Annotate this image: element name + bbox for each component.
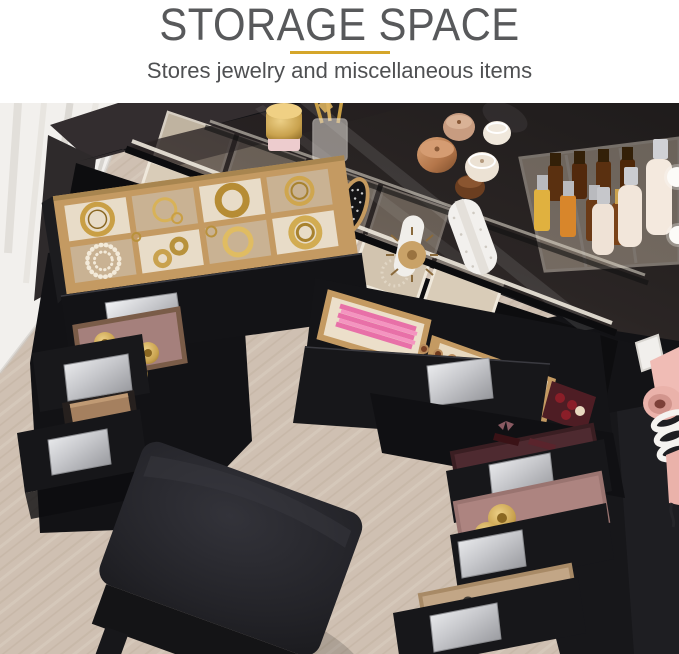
tan-jar [443, 113, 475, 141]
page-title: STORAGE SPACE [24, 0, 655, 48]
product-card: STORAGE SPACE Stores jewelry and miscell… [0, 0, 679, 654]
copper-jar [417, 137, 457, 173]
product-photo [0, 103, 679, 654]
header-banner: STORAGE SPACE Stores jewelry and miscell… [0, 0, 679, 103]
gold-divider [290, 51, 390, 54]
subtitle-text: Stores jewelry and miscellaneous items [0, 58, 679, 84]
drawer-handle [427, 358, 493, 406]
gold-cosmetic-jar [266, 103, 302, 151]
